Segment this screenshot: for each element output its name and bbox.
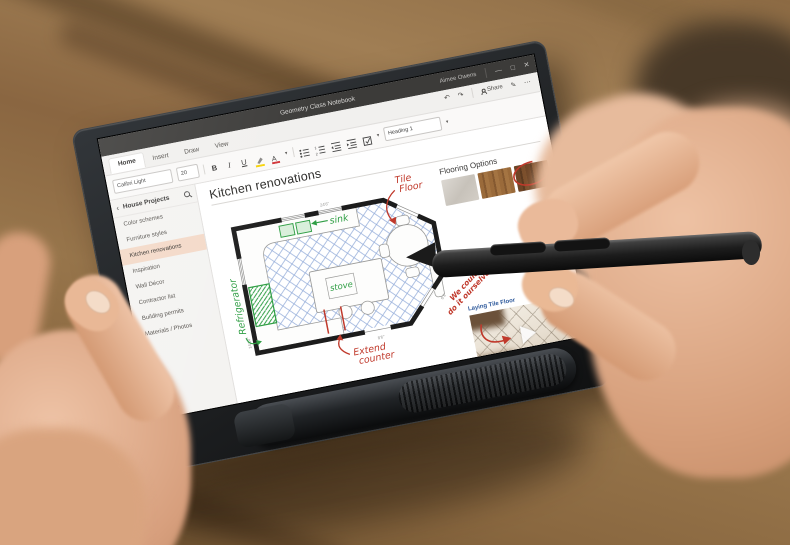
person-icon: [480, 88, 486, 94]
inking-pen-icon[interactable]: ✎: [510, 80, 517, 89]
photo-scene: Geometry Class Notebook Aimee Owens — □ …: [0, 0, 790, 545]
font-size-dropdown[interactable]: 20: [176, 164, 200, 182]
share-button[interactable]: Share: [480, 84, 504, 94]
kitchen-floor-plan: 24'6" 14'10" 8'6" 6'3" Refrigerator: [212, 165, 470, 395]
light-wood-sample-image[interactable]: [477, 167, 515, 199]
redo-icon[interactable]: ↷: [457, 91, 464, 100]
italic-button[interactable]: I: [223, 159, 235, 170]
maximize-button[interactable]: □: [510, 64, 515, 72]
divider: [203, 164, 206, 174]
divider: [471, 88, 474, 98]
increase-indent-icon[interactable]: [345, 135, 358, 147]
dimension-bottom: 8'6": [377, 334, 385, 340]
signed-in-user[interactable]: Aimee Owens: [439, 72, 477, 85]
font-color-icon[interactable]: A: [268, 150, 281, 162]
chevron-down-icon[interactable]: ▾: [446, 119, 450, 125]
stone-tile-sample-image[interactable]: [441, 174, 479, 206]
more-options-icon[interactable]: ⋯: [523, 78, 531, 87]
numbered-list-icon[interactable]: 12: [313, 141, 326, 153]
bold-button[interactable]: B: [209, 162, 221, 173]
play-button-icon[interactable]: [520, 323, 538, 344]
sink-basin: [296, 220, 312, 234]
search-icon[interactable]: [183, 191, 191, 199]
chevron-down-icon[interactable]: ▾: [285, 150, 289, 156]
svg-text:2: 2: [315, 152, 318, 156]
back-chevron-icon[interactable]: ‹: [116, 204, 120, 213]
dimension-top: 24'6": [320, 201, 331, 208]
chevron-down-icon[interactable]: ▾: [376, 132, 380, 138]
underline-button[interactable]: U: [238, 156, 250, 167]
todo-tag-icon[interactable]: [360, 132, 373, 144]
bullet-list-icon[interactable]: [297, 144, 310, 156]
hinge-knuckle: [233, 402, 297, 448]
undo-icon[interactable]: ↶: [443, 93, 450, 102]
divider: [292, 147, 295, 157]
divider: [484, 68, 487, 78]
svg-text:1: 1: [314, 146, 317, 150]
highlighter-icon[interactable]: [253, 153, 266, 165]
minimize-button[interactable]: —: [494, 66, 502, 74]
sink-basin: [279, 224, 295, 238]
decrease-indent-icon[interactable]: [329, 138, 342, 150]
close-button[interactable]: ✕: [523, 61, 530, 70]
